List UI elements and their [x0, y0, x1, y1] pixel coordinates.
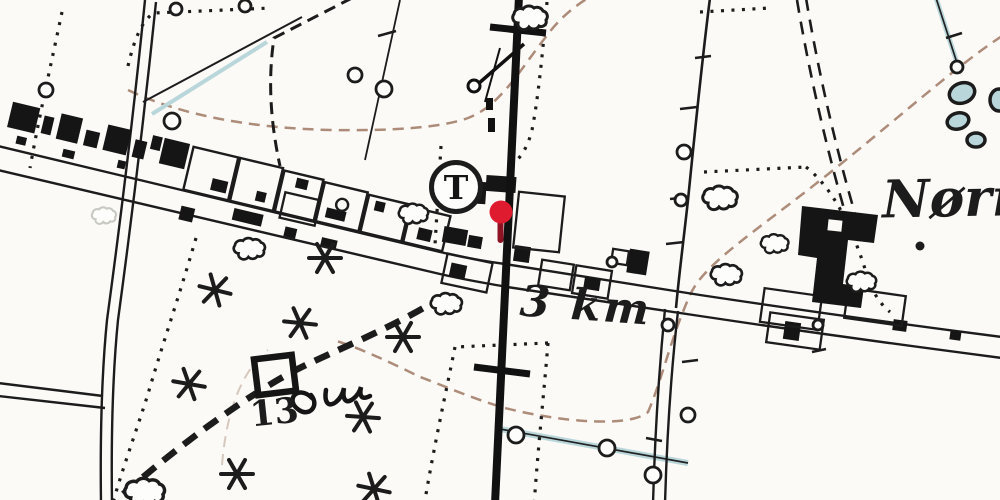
place-dot — [916, 242, 925, 251]
parcel-square-symbol — [254, 355, 296, 395]
dashed-boundaries — [271, 0, 352, 166]
map-linework — [0, 0, 1000, 500]
water-stream-edges — [500, 0, 958, 463]
ponds — [945, 79, 1000, 147]
telephone-station-symbol: T — [429, 160, 483, 214]
station-buildings — [280, 175, 962, 350]
dotted-boundaries — [30, 2, 890, 500]
map-canvas[interactable]: Nørre 3 km 13 T — [0, 0, 1000, 500]
